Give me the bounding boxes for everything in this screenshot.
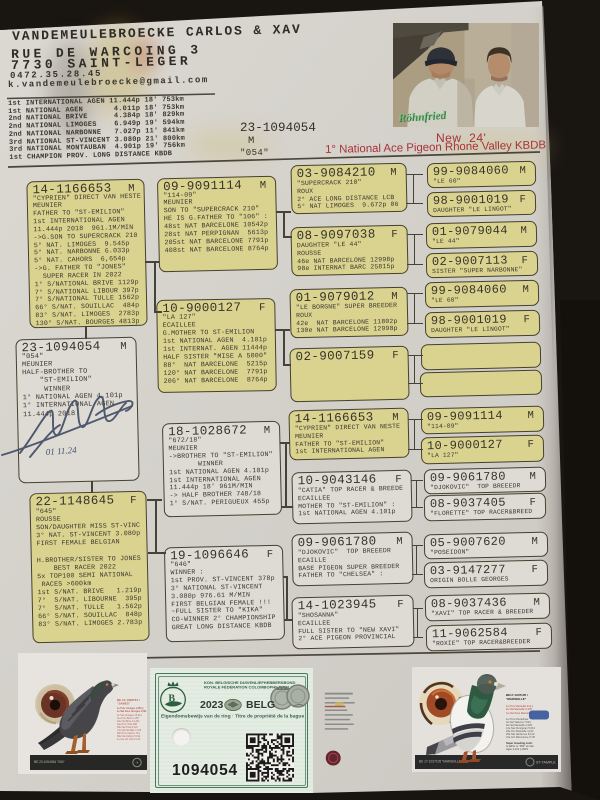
svg-text:"JAMES": "JAMES" — [117, 702, 131, 706]
svg-text:ST-TAMPLE: ST-TAMPLE — [536, 761, 556, 765]
svg-text:BE 23-1094054 "054": BE 23-1094054 "054" — [34, 760, 65, 764]
svg-text:2e Nat Marseille 2,225: 2e Nat Marseille 2,225 — [506, 707, 533, 711]
svg-text:1e Nat Zone Marseille: 1e Nat Zone Marseille — [506, 711, 532, 715]
svg-text:"MARSEILLE": "MARSEILLE" — [506, 697, 527, 701]
svg-text:01 11.24: 01 11.24 — [45, 445, 77, 457]
svg-text:1e Ace LD Club 21-22: 1e Ace LD Club 21-22 — [117, 738, 141, 741]
svg-text:BE 17-1037105 "MARSEILLE": BE 17-1037105 "MARSEILLE" — [419, 760, 462, 764]
svg-text:1e Nat Zone Limoges 4,501: 1e Nat Zone Limoges 4,501 — [117, 710, 147, 713]
svg-text:Agen 4,101 p 2023: Agen 4,101 p 2023 — [506, 747, 528, 751]
svg-text:31e Intn Barcelona 17,06: 31e Intn Barcelona 17,06 — [506, 735, 536, 739]
